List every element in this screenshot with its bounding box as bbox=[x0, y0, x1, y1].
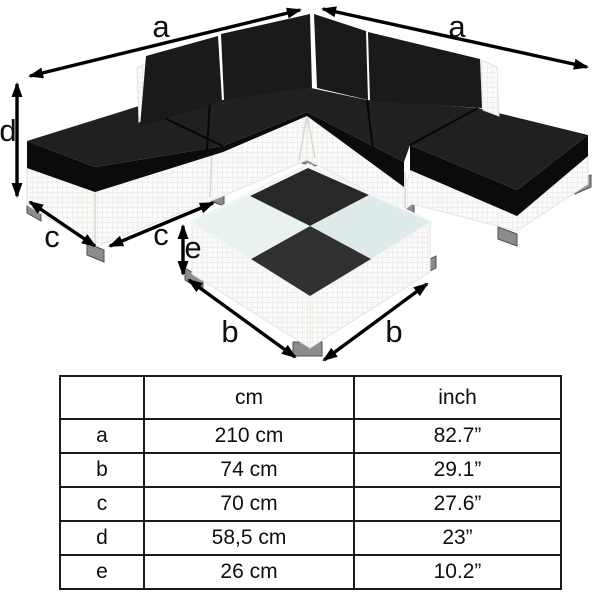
imperial-value: 10.2” bbox=[354, 555, 561, 589]
table-row: c 70 cm 27.6” bbox=[60, 487, 561, 521]
dim-label-c: c bbox=[44, 219, 60, 254]
dimensions-table: cm inch a 210 cm 82.7” b 74 cm 29.1” c 7… bbox=[59, 375, 562, 590]
dim-label-b: b bbox=[221, 314, 238, 349]
metric-value: 58,5 cm bbox=[144, 521, 354, 555]
dim-label-a: a bbox=[448, 9, 466, 44]
metric-value: 74 cm bbox=[144, 453, 354, 487]
dim-label-a: a bbox=[152, 9, 170, 44]
header-imperial: inch bbox=[354, 376, 561, 419]
dim-label-e: e bbox=[184, 230, 201, 265]
dimension-arrow-d: d bbox=[0, 84, 17, 196]
dim-label-c: c bbox=[153, 217, 169, 252]
imperial-value: 23” bbox=[354, 521, 561, 555]
dim-key: b bbox=[60, 453, 144, 487]
back-post-right bbox=[481, 60, 499, 116]
dim-key: e bbox=[60, 555, 144, 589]
imperial-value: 82.7” bbox=[354, 419, 561, 453]
dim-key: a bbox=[60, 419, 144, 453]
metric-value: 210 cm bbox=[144, 419, 354, 453]
table-header-row: cm inch bbox=[60, 376, 561, 419]
dim-key: c bbox=[60, 487, 144, 521]
dim-label-d: d bbox=[0, 113, 17, 148]
metric-value: 70 cm bbox=[144, 487, 354, 521]
header-dimension bbox=[60, 376, 144, 419]
metric-value: 26 cm bbox=[144, 555, 354, 589]
product-dimension-diagram: a a d c c e b bbox=[0, 0, 600, 600]
back-cushion bbox=[314, 14, 368, 100]
table-row: e 26 cm 10.2” bbox=[60, 555, 561, 589]
table-row: a 210 cm 82.7” bbox=[60, 419, 561, 453]
imperial-value: 29.1” bbox=[354, 453, 561, 487]
imperial-value: 27.6” bbox=[354, 487, 561, 521]
table-row: d 58,5 cm 23” bbox=[60, 521, 561, 555]
dim-label-b: b bbox=[385, 314, 402, 349]
header-metric: cm bbox=[144, 376, 354, 419]
dim-key: d bbox=[60, 521, 144, 555]
table-row: b 74 cm 29.1” bbox=[60, 453, 561, 487]
